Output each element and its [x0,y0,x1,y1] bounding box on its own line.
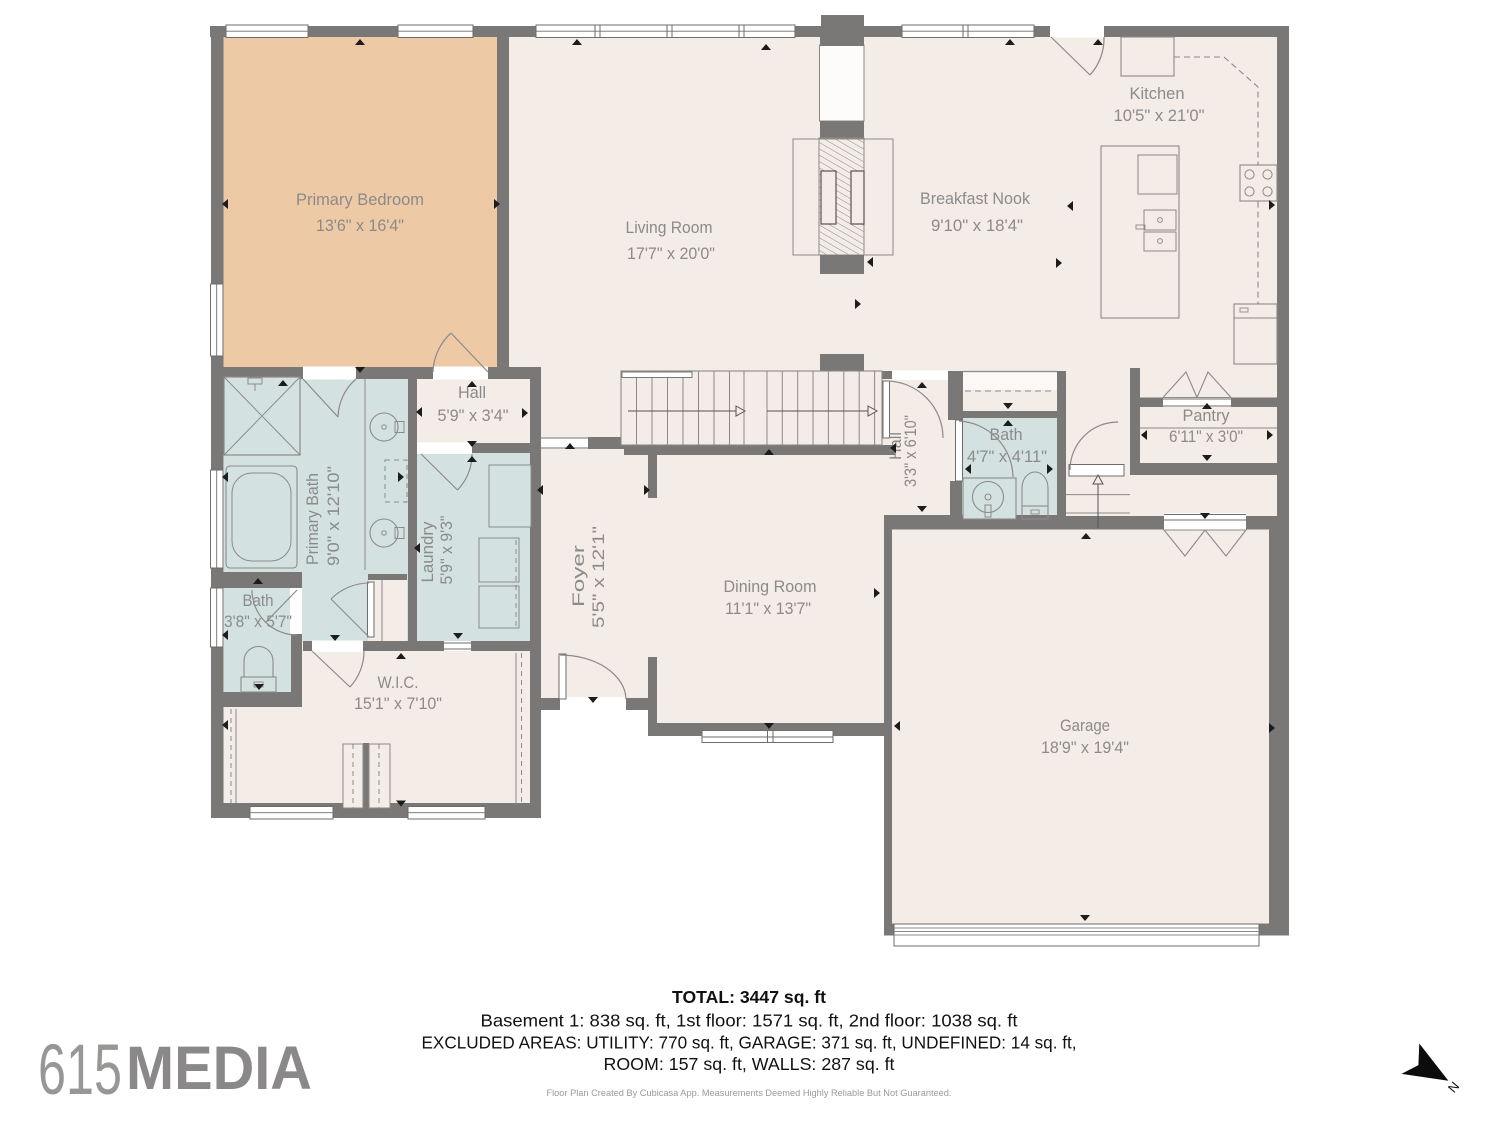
svg-text:W.I.C.: W.I.C. [378,673,419,692]
svg-text:Kitchen: Kitchen [1130,84,1185,103]
svg-text:17'7" x 20'0": 17'7" x 20'0" [627,245,715,263]
svg-text:15'1" x 7'10": 15'1" x 7'10" [354,695,442,713]
svg-text:ROOM: 157 sq. ft, WALLS: 287 s: ROOM: 157 sq. ft, WALLS: 287 sq. ft [604,1054,895,1074]
svg-text:5'9" x 3'4": 5'9" x 3'4" [438,407,509,425]
svg-text:3'3" x 6'10": 3'3" x 6'10" [902,415,920,487]
svg-text:9'10" x 18'4": 9'10" x 18'4" [931,217,1023,235]
svg-text:Bath: Bath [990,425,1023,444]
svg-text:11'1" x 13'7": 11'1" x 13'7" [725,600,811,618]
svg-text:4'7" x 4'11": 4'7" x 4'11" [967,448,1047,466]
svg-text:MEDIA: MEDIA [126,1034,312,1102]
svg-text:TOTAL: 3447 sq. ft: TOTAL: 3447 sq. ft [672,987,826,1007]
svg-text:Garage: Garage [1060,716,1110,735]
svg-text:Living Room: Living Room [626,218,713,237]
svg-text:Bath: Bath [243,591,274,610]
svg-text:Primary Bath: Primary Bath [303,473,322,565]
svg-text:13'6" x 16'4": 13'6" x 16'4" [316,217,404,235]
svg-text:6'11" x 3'0": 6'11" x 3'0" [1169,428,1243,446]
svg-text:Basement 1: 838 sq. ft, 1st fl: Basement 1: 838 sq. ft, 1st floor: 1571 … [481,1011,1018,1031]
svg-text:615: 615 [38,1031,122,1110]
svg-text:5'5" x 12'1": 5'5" x 12'1" [590,526,608,628]
svg-text:Floor Plan Created By Cubicasa: Floor Plan Created By Cubicasa App. Meas… [547,1088,952,1099]
svg-text:10'5" x 21'0": 10'5" x 21'0" [1114,107,1205,125]
svg-text:Breakfast Nook: Breakfast Nook [920,189,1030,208]
svg-text:18'9" x 19'4": 18'9" x 19'4" [1041,739,1129,757]
svg-text:5'9" x 9'3": 5'9" x 9'3" [438,515,456,584]
svg-text:EXCLUDED AREAS: UTILITY: 770 s: EXCLUDED AREAS: UTILITY: 770 sq. ft, GAR… [422,1033,1077,1053]
svg-text:Laundry: Laundry [418,521,437,582]
svg-text:9'0" x 12'10": 9'0" x 12'10" [325,466,343,566]
svg-text:3'8" x 5'7": 3'8" x 5'7" [224,613,292,631]
svg-text:Dining Room: Dining Room [724,577,817,596]
svg-text:Primary Bedroom: Primary Bedroom [296,190,424,209]
svg-text:Foyer: Foyer [569,545,588,607]
